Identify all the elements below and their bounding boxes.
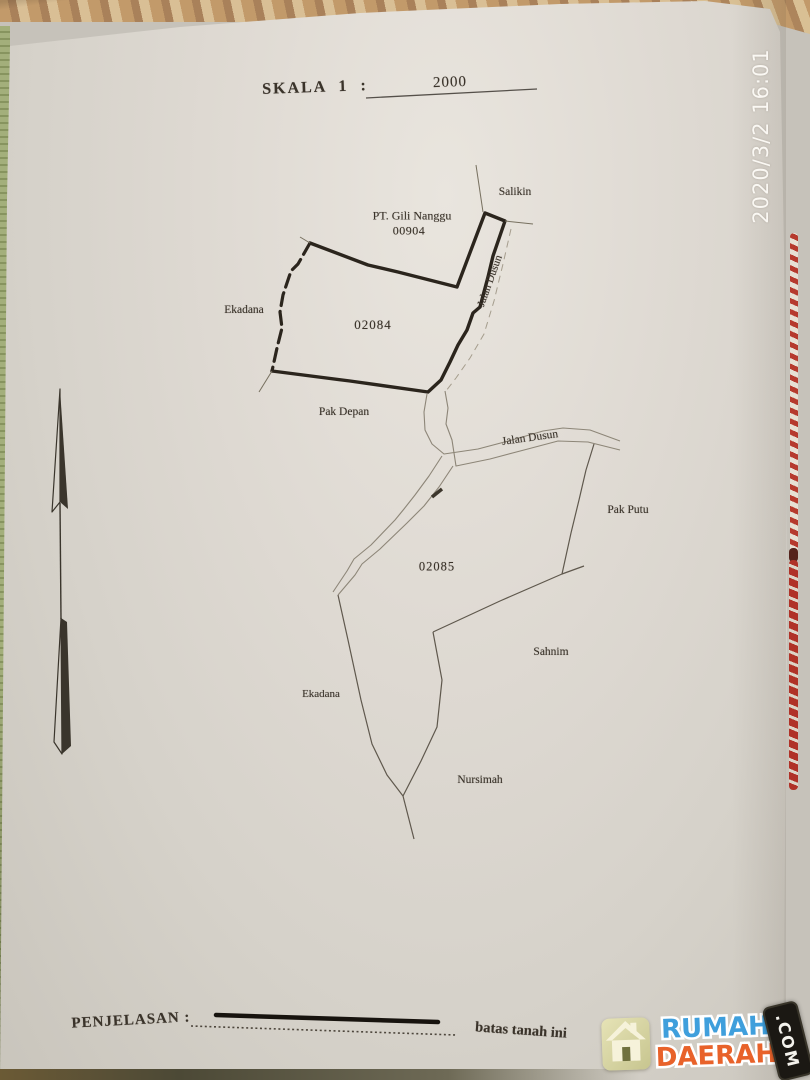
scale-value: 2000 <box>433 74 468 92</box>
label-neighbor-ekadana-south: Ekadana <box>302 688 340 700</box>
logo-badge-text: .COM <box>772 1012 804 1070</box>
label-parcel-id-02084: 02084 <box>354 317 392 333</box>
house-icon <box>601 1017 651 1071</box>
paper-sheet <box>0 0 810 1080</box>
label-neighbor-pak-depan: Pak Depan <box>319 406 369 418</box>
photographed-land-sketch: SKALA 1 : 2000 Salikin PT. Gili Nanggu 0… <box>0 0 810 1080</box>
label-neighbor-salikin: Salikin <box>499 186 532 198</box>
camera-timestamp: 2020/3/2 16:01 <box>749 20 777 252</box>
label-neighbor-pak-putu: Pak Putu <box>607 504 648 516</box>
label-parcel-id-02085: 02085 <box>419 560 455 575</box>
label-owner-pt-gili-nanggu: PT. Gili Nanggu <box>373 209 452 224</box>
label-neighbor-ekadana-north: Ekadana <box>224 304 264 316</box>
rumah-daerah-watermark: RUMAH DAERAH .COM <box>595 1005 810 1080</box>
logo-tile <box>601 1017 651 1071</box>
scale-label: SKALA 1 : <box>262 77 368 99</box>
label-neighbor-sahnim: Sahnim <box>533 646 568 658</box>
red-stitch-cord-upper <box>790 233 798 555</box>
label-certificate-00904: 00904 <box>393 224 426 239</box>
red-stitch-cord-lower <box>789 560 798 790</box>
logo-wordmark: RUMAH DAERAH <box>649 1010 783 1077</box>
label-neighbor-nursimah: Nursimah <box>457 774 502 786</box>
paper-bottom-rim <box>0 1069 640 1080</box>
paper-top-shadow <box>0 0 810 60</box>
logo-word-bottom: DAERAH <box>655 1039 777 1073</box>
